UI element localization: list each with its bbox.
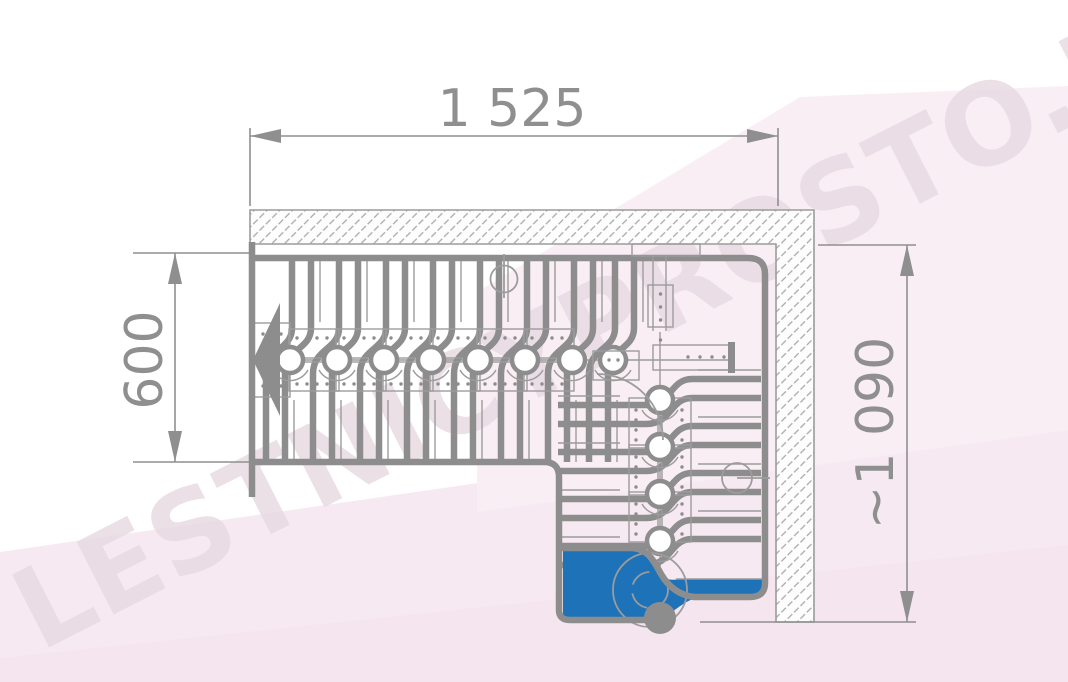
staircase-plan-drawing: LESTNICYPROSTO.RU [0,0,1068,682]
dimension-right-label: ~1 090 [846,337,906,529]
dimension-top-label: 1 525 [438,79,587,139]
arrow-up-icon [168,253,182,284]
dimension-left-label: 600 [115,310,175,409]
post-base [644,602,676,634]
staircase-drawing-page: LESTNICYPROSTO.RU [0,0,1068,682]
arrow-left-icon [250,129,281,143]
pivot-node [319,347,355,381]
dimension-left: 600 [115,253,252,462]
arrow-down-icon [168,431,182,462]
beam-end-cap [728,342,735,373]
